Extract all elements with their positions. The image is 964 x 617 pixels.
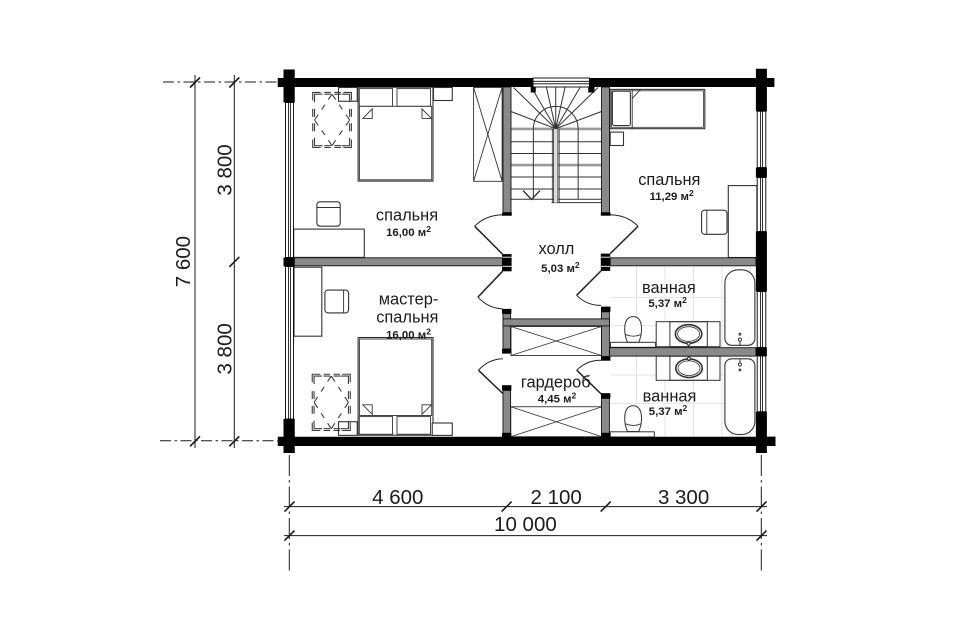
svg-text:16,00 м2: 16,00 м2 bbox=[386, 327, 431, 342]
svg-text:3 300: 3 300 bbox=[658, 486, 709, 509]
svg-text:ванная: ванная bbox=[642, 279, 696, 297]
svg-text:мастер-: мастер- bbox=[379, 291, 439, 309]
svg-text:10 000: 10 000 bbox=[494, 513, 557, 536]
svg-text:спальня: спальня bbox=[376, 206, 438, 224]
svg-text:3 800: 3 800 bbox=[214, 144, 237, 195]
svg-text:7 600: 7 600 bbox=[172, 236, 195, 287]
svg-text:спальня: спальня bbox=[638, 171, 700, 189]
svg-text:ванная: ванная bbox=[643, 388, 697, 406]
svg-text:спальня: спальня bbox=[376, 308, 438, 326]
svg-text:гардероб: гардероб bbox=[521, 374, 591, 392]
svg-text:5,37 м2: 5,37 м2 bbox=[648, 295, 687, 310]
svg-text:холл: холл bbox=[538, 240, 574, 258]
svg-text:4 600: 4 600 bbox=[372, 486, 423, 509]
svg-text:2 100: 2 100 bbox=[531, 486, 582, 509]
svg-text:5,03 м2: 5,03 м2 bbox=[541, 260, 580, 275]
svg-text:16,00 м2: 16,00 м2 bbox=[386, 224, 431, 239]
svg-text:11,29 м2: 11,29 м2 bbox=[649, 188, 693, 203]
svg-text:4,45 м2: 4,45 м2 bbox=[538, 391, 577, 406]
svg-text:5,37 м2: 5,37 м2 bbox=[649, 403, 688, 418]
svg-text:3 800: 3 800 bbox=[214, 323, 237, 374]
